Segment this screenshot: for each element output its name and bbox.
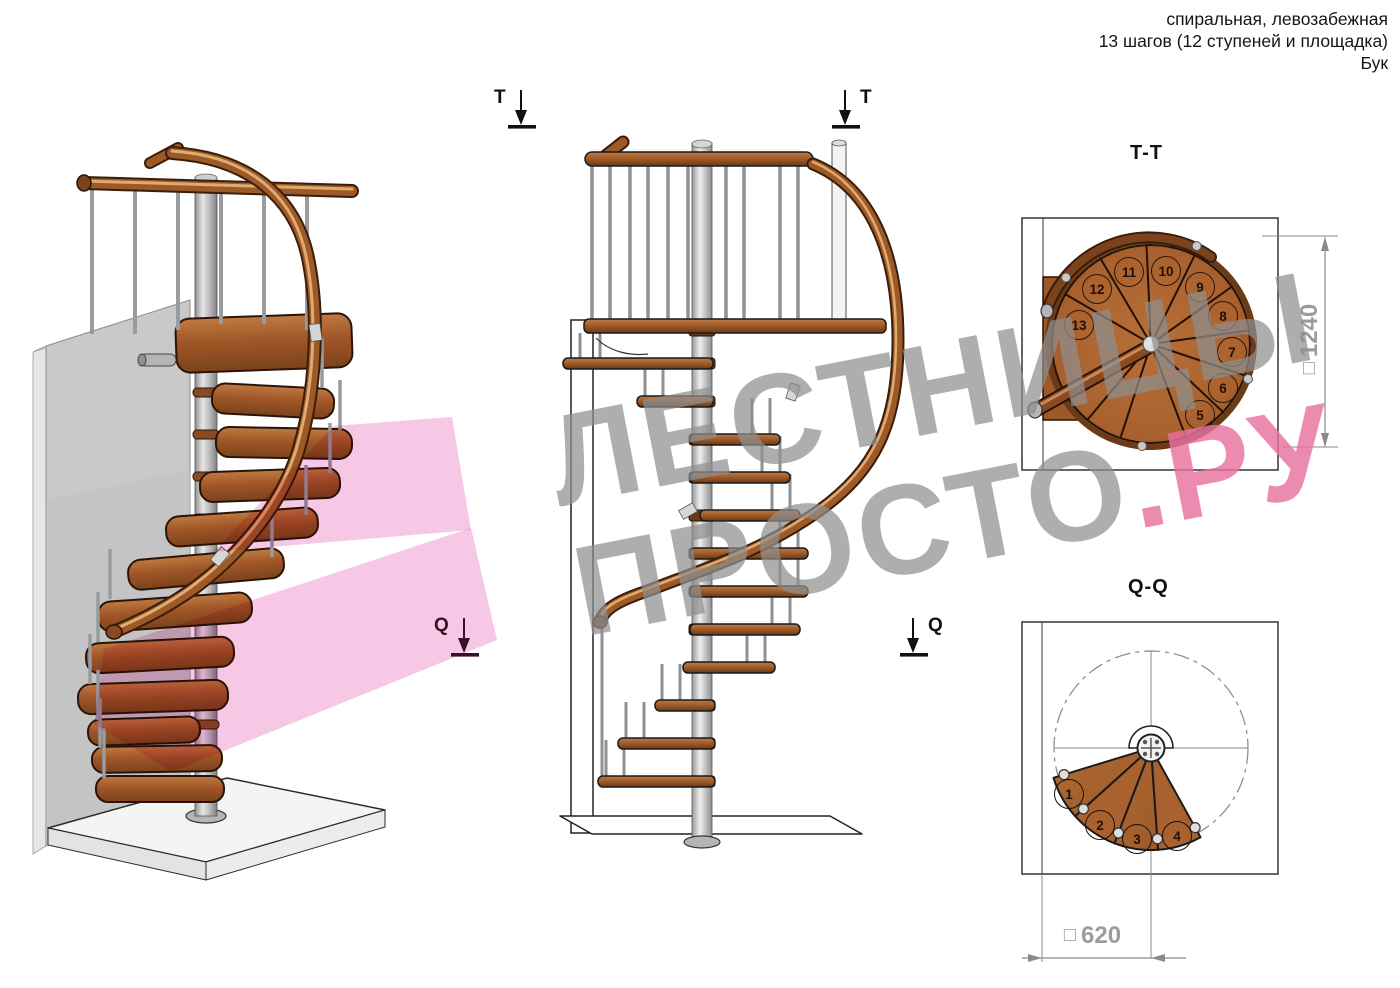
- section-arrow-icon: [830, 88, 860, 132]
- section-arrow-icon: [506, 88, 536, 132]
- elevation-view-drawing: [430, 80, 975, 880]
- section-marker-t-left: T: [494, 88, 536, 132]
- tt-step-badge: 5: [1185, 400, 1215, 430]
- tt-dimension: □1240: [1296, 259, 1324, 419]
- section-letter: T: [860, 88, 872, 107]
- qq-step-badge: 1: [1054, 779, 1084, 809]
- title-line: Бук: [1099, 52, 1388, 74]
- wall-section: [571, 320, 593, 833]
- title-line: 13 шагов (12 ступеней и площадка): [1099, 30, 1388, 52]
- qq-step-badge: 4: [1162, 821, 1192, 851]
- tt-step-badge: 9: [1185, 272, 1215, 302]
- title-line: спиральная, левозабежная: [1099, 8, 1388, 30]
- landing-platform: [584, 319, 886, 354]
- qq-dimension-value: 620: [1081, 922, 1121, 949]
- title-block: спиральная, левозабежная 13 шагов (12 ст…: [1099, 8, 1388, 74]
- tt-dimension-value: 1240: [1296, 304, 1323, 357]
- tt-step-badge: 10: [1151, 256, 1181, 286]
- square-symbol: □: [1298, 362, 1320, 374]
- qq-plan-drawing: [1000, 570, 1390, 980]
- top-post: [832, 140, 846, 321]
- section-marker-q-right: Q: [898, 616, 943, 660]
- section-arrow-icon: [898, 616, 928, 660]
- tt-step-badge: 7: [1217, 337, 1247, 367]
- section-letter: Q: [928, 616, 943, 635]
- tt-step-badge: 12: [1082, 274, 1112, 304]
- tt-step-badge: 8: [1208, 301, 1238, 331]
- section-letter: Q: [434, 616, 449, 635]
- qq-view-label: Q-Q: [1128, 576, 1169, 599]
- section-arrow-icon: [449, 616, 479, 660]
- tt-view-label: T-T: [1130, 142, 1163, 165]
- qq-dimension: □620: [1030, 922, 1155, 950]
- qq-step-badge: 2: [1085, 810, 1115, 840]
- tt-step-badge: 11: [1114, 257, 1144, 287]
- guard-rail-3d: [84, 181, 352, 191]
- wall-anchor: [138, 354, 176, 366]
- tt-step-badge: 6: [1208, 373, 1238, 403]
- tt-plan-drawing: [1000, 130, 1390, 490]
- section-marker-q-iso: Q: [434, 616, 479, 660]
- qq-step-badge: 3: [1122, 824, 1152, 854]
- section-letter: T: [494, 88, 506, 107]
- square-symbol: □: [1064, 924, 1076, 946]
- drawing-canvas: спиральная, левозабежная 13 шагов (12 ст…: [0, 0, 1400, 988]
- tt-step-badge: 13: [1064, 310, 1094, 340]
- section-marker-t-right: T: [830, 88, 872, 132]
